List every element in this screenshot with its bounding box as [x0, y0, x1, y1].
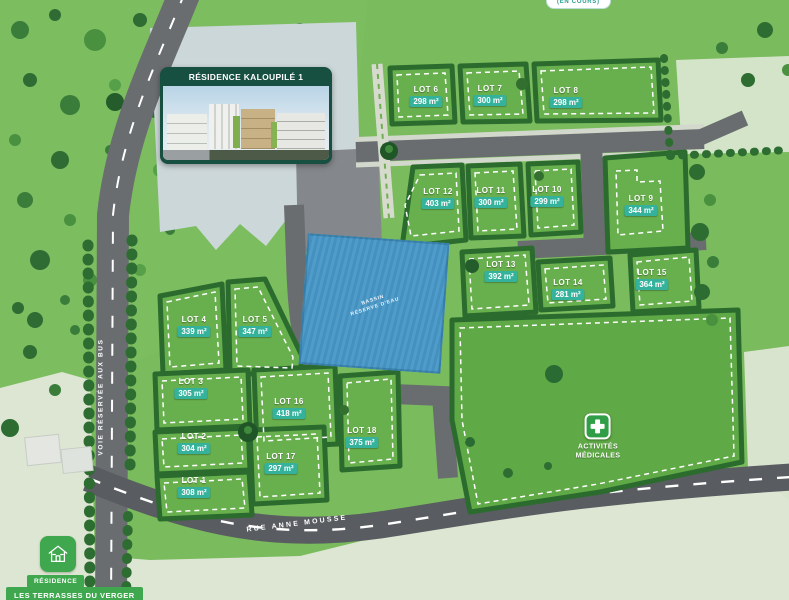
status-pill-label: (EN COURS)	[557, 0, 600, 5]
lot-area-badge: 305 m²	[174, 388, 207, 399]
lot-area-badge: 298 m²	[549, 97, 582, 108]
lot-area-badge: 403 m²	[421, 198, 454, 209]
lot-marker[interactable]: LOT 3 305 m²	[174, 377, 207, 399]
lot-area-badge: 308 m²	[177, 487, 210, 498]
lot-name: LOT 18	[347, 426, 377, 435]
lot-area-badge: 281 m²	[551, 289, 584, 300]
lot-area-badge: 364 m²	[635, 279, 668, 290]
photo-ground	[163, 150, 329, 160]
photo-vegetation-accent	[233, 116, 240, 148]
lot-name: LOT 11	[476, 186, 505, 195]
lot-area-badge: 298 m²	[409, 96, 442, 107]
lot-marker[interactable]: LOT 13 392 m²	[484, 260, 517, 282]
lot-name: LOT 9	[629, 194, 654, 203]
water-basin: BASSIN RÉSERVE D'EAU	[299, 233, 450, 374]
medical-label-line2: MÉDICALES	[576, 452, 621, 461]
lot-name: LOT 1	[182, 476, 207, 485]
lot-name: LOT 15	[637, 268, 667, 277]
lot-name: LOT 6	[414, 85, 439, 94]
lot-marker[interactable]: LOT 8 298 m²	[549, 86, 582, 108]
photo-building-block	[241, 109, 275, 149]
medical-area-marker[interactable]: ACTIVITÉS MÉDICALES	[576, 413, 621, 460]
site-masterplan: BASSIN RÉSERVE D'EAU (EN COURS) RÉSIDENC…	[0, 0, 789, 600]
lot-area-badge: 347 m²	[238, 326, 271, 337]
lot-name: LOT 13	[486, 260, 516, 269]
kaloupile-card-photo	[163, 86, 329, 160]
lot-area-badge: 375 m²	[345, 437, 378, 448]
lot-area-badge: 344 m²	[624, 205, 657, 216]
lot-marker[interactable]: LOT 2 304 m²	[177, 432, 210, 454]
bus-lane-label: VOIE RÉSERVÉE AUX BUS	[98, 338, 105, 455]
lot-marker[interactable]: LOT 18 375 m²	[345, 426, 378, 448]
lot-name: LOT 4	[182, 315, 207, 324]
lot-area-badge: 300 m²	[473, 95, 506, 106]
photo-building-block	[167, 114, 207, 150]
lot-area-badge: 300 m²	[474, 197, 507, 208]
lot-marker[interactable]: LOT 15 364 m²	[635, 268, 668, 290]
medical-cross-icon	[585, 413, 611, 439]
lot-area-badge: 392 m²	[484, 271, 517, 282]
lot-name: LOT 2	[182, 432, 207, 441]
lot-name: LOT 10	[532, 185, 562, 194]
lot-name: LOT 3	[179, 377, 204, 386]
house-icon	[40, 536, 76, 572]
lot-marker[interactable]: LOT 17 297 m²	[264, 452, 297, 474]
lot-marker[interactable]: LOT 6 298 m²	[409, 85, 442, 107]
basin-label: BASSIN RÉSERVE D'EAU	[286, 219, 462, 387]
photo-building-block	[277, 113, 325, 150]
lot-name: LOT 8	[554, 86, 579, 95]
lot-marker[interactable]: LOT 12 403 m²	[421, 187, 454, 209]
lot-name: LOT 5	[243, 315, 268, 324]
lot-name: LOT 12	[423, 187, 453, 196]
lot-marker[interactable]: LOT 1 308 m²	[177, 476, 210, 498]
lot-area-badge: 304 m²	[177, 443, 210, 454]
lot-name: LOT 17	[266, 452, 296, 461]
kaloupile-card[interactable]: RÉSIDENCE KALOUPILÉ 1	[160, 67, 332, 164]
lot-marker[interactable]: LOT 10 299 m²	[530, 185, 563, 207]
medical-label-line1: ACTIVITÉS	[576, 442, 621, 451]
lot-marker[interactable]: LOT 7 300 m²	[473, 84, 506, 106]
medical-area-label: ACTIVITÉS MÉDICALES	[576, 442, 621, 460]
kaloupile-card-title: RÉSIDENCE KALOUPILÉ 1	[160, 67, 332, 86]
lot-name: LOT 16	[274, 397, 304, 406]
lot-area-badge: 297 m²	[264, 463, 297, 474]
status-pill: (EN COURS)	[546, 0, 611, 9]
photo-vegetation-accent	[271, 122, 277, 148]
lot-marker[interactable]: LOT 11 300 m²	[474, 186, 507, 208]
lot-marker[interactable]: LOT 4 339 m²	[177, 315, 210, 337]
lot-marker[interactable]: LOT 9 344 m²	[624, 194, 657, 216]
lot-area-badge: 418 m²	[272, 408, 305, 419]
lot-name: LOT 14	[553, 278, 583, 287]
lot-marker[interactable]: LOT 14 281 m²	[551, 278, 584, 300]
terrasses-du-verger-badge[interactable]: RÉSIDENCE LES TERRASSES DU VERGER	[6, 536, 126, 600]
lot-name: LOT 7	[478, 84, 503, 93]
lot-area-badge: 339 m²	[177, 326, 210, 337]
residence-badge-bottom: LES TERRASSES DU VERGER	[6, 587, 143, 600]
lot-marker[interactable]: LOT 16 418 m²	[272, 397, 305, 419]
lot-area-badge: 299 m²	[530, 196, 563, 207]
lot-marker[interactable]: LOT 5 347 m²	[238, 315, 271, 337]
